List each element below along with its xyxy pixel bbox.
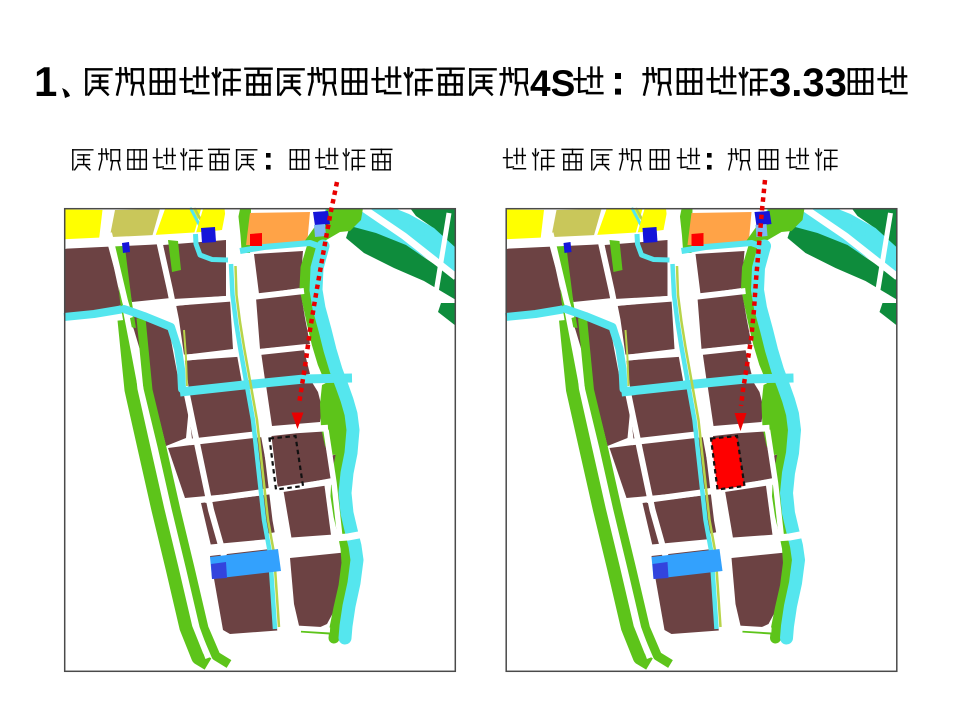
svg-text:4S: 4S [530, 63, 575, 104]
svg-text:1: 1 [34, 58, 57, 105]
svg-text:3.33: 3.33 [769, 61, 847, 105]
